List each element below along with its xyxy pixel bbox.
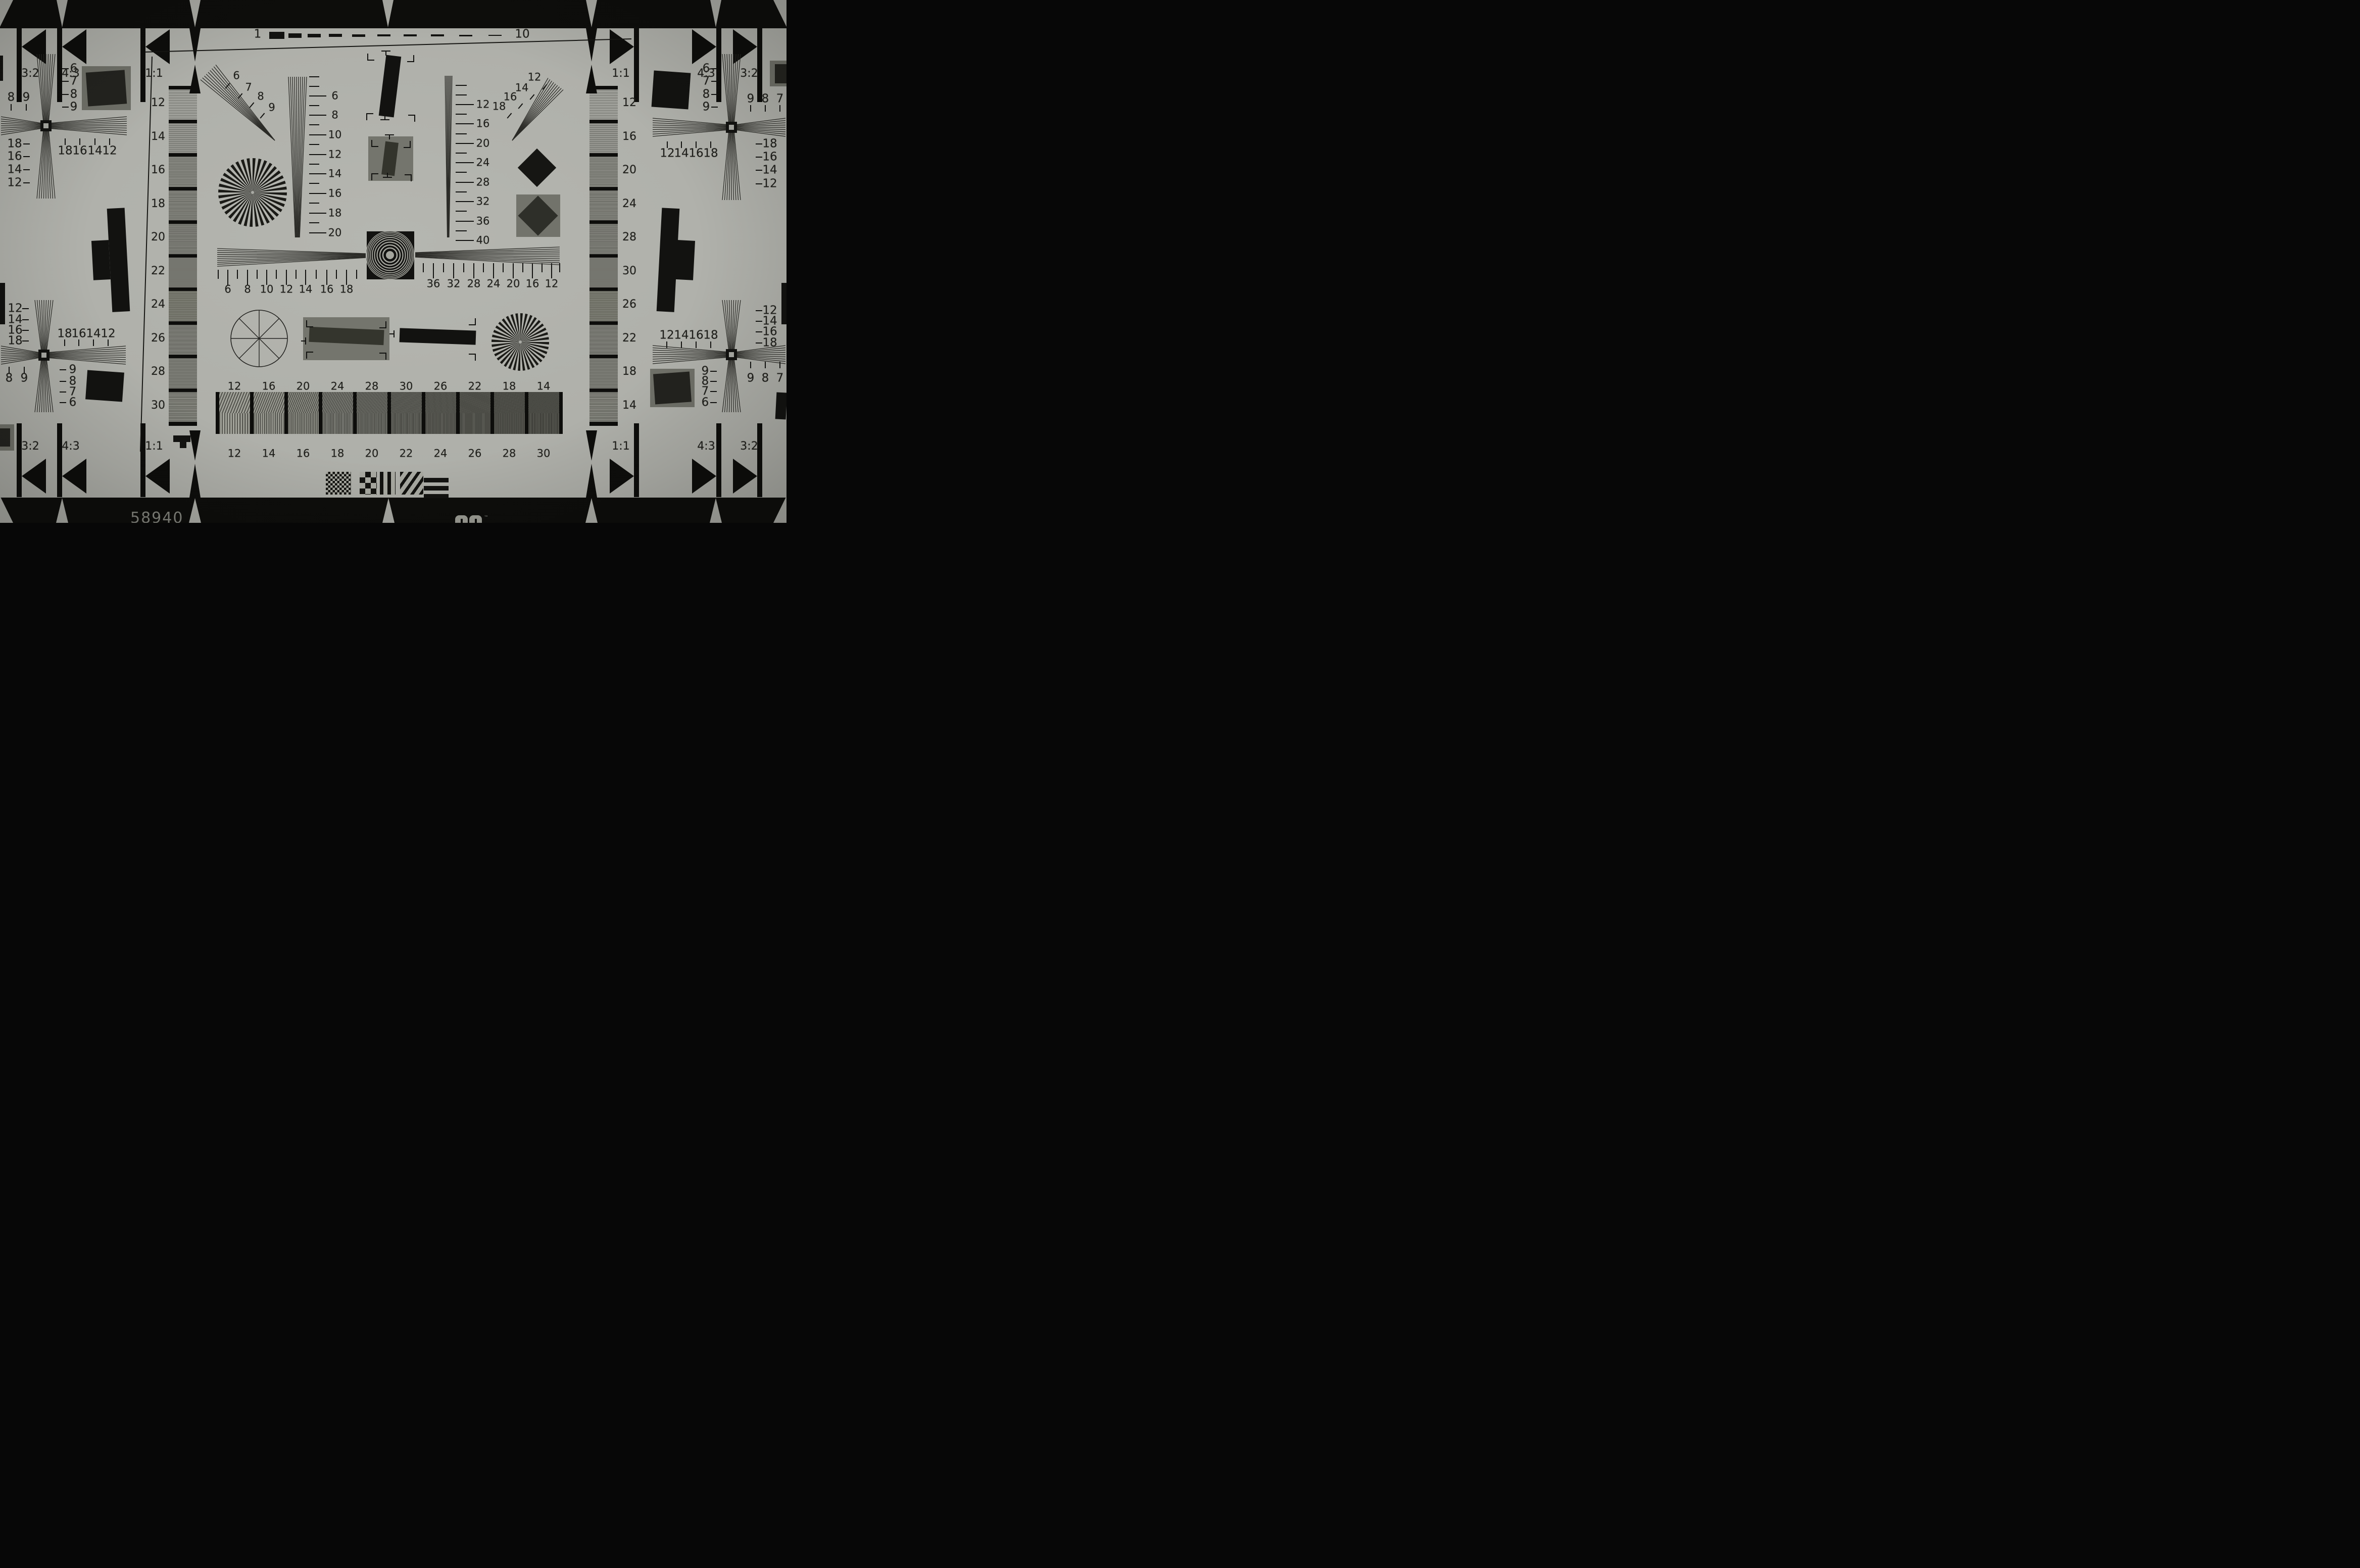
aspect-ratio-label: 3:2 <box>21 441 39 452</box>
scale-label: 9 <box>747 373 755 384</box>
scale-label: 7 <box>776 93 784 105</box>
scale-label: 6 <box>70 63 78 75</box>
scale-label: 12 <box>280 284 293 295</box>
resolution-bar-bottom-label: 24 <box>434 449 448 459</box>
scale-label: 8 <box>257 91 264 102</box>
scale-label: 16 <box>762 152 777 163</box>
chart-labels-layer: 3:24:31:11:14:33:23:24:31:11:14:33:21106… <box>0 0 786 523</box>
scale-label: 18 <box>328 208 342 219</box>
scale-label: 18 <box>703 330 718 341</box>
resolution-bar-bottom-label: 20 <box>365 449 379 459</box>
aspect-ratio-label: 4:3 <box>62 441 79 452</box>
aspect-ratio-label: 3:2 <box>740 68 758 79</box>
step-strip-label: 28 <box>622 232 636 243</box>
scale-label: 9 <box>268 103 275 113</box>
resolution-bar-bottom-label: 30 <box>537 449 551 459</box>
step-strip-label: 20 <box>151 232 165 243</box>
aspect-ratio-label: 1:1 <box>612 441 629 452</box>
resolution-bar-top-label: 16 <box>262 381 276 392</box>
scale-label: 18 <box>57 328 72 340</box>
scale-label: 14 <box>299 284 313 295</box>
scale-label: 9 <box>69 364 77 376</box>
step-strip-label: 16 <box>622 131 636 142</box>
aspect-ratio-label: 3:2 <box>740 441 758 452</box>
scale-label: 40 <box>476 235 490 246</box>
scale-label: 18 <box>703 148 718 160</box>
scale-label: 20 <box>328 228 342 238</box>
scale-label: 18 <box>8 335 22 347</box>
resolution-bar-top-label: 18 <box>503 381 516 392</box>
scale-label: 8 <box>70 89 78 101</box>
step-strip-label: 22 <box>151 266 165 277</box>
scale-label: 8 <box>762 373 769 384</box>
scale-label: 18 <box>762 337 777 349</box>
scale-label: 14 <box>87 145 102 157</box>
step-strip-label: 26 <box>622 299 636 310</box>
step-strip-label: 30 <box>151 400 165 411</box>
resolution-bar-top-label: 20 <box>297 381 310 392</box>
scale-label: 9 <box>21 373 28 384</box>
resolution-bar-top-label: 26 <box>434 381 448 392</box>
scale-label: 14 <box>674 148 689 160</box>
resolution-bar-top-label: 24 <box>331 381 345 392</box>
scale-label: 16 <box>328 188 342 199</box>
aspect-ratio-label: 3:2 <box>21 68 39 79</box>
aspect-ratio-label: 4:3 <box>697 441 715 452</box>
scale-label: 14 <box>7 164 22 176</box>
scale-label: 18 <box>58 145 72 157</box>
scale-label: 12 <box>762 178 777 190</box>
scale-label: 12 <box>328 150 342 160</box>
scale-label: 12 <box>545 279 559 289</box>
scale-label: 8 <box>8 92 15 104</box>
ruler-start-label: 1 <box>254 29 262 40</box>
step-strip-label: 24 <box>151 299 165 310</box>
scale-label: 12 <box>102 145 117 157</box>
scale-label: 14 <box>515 83 529 93</box>
scale-label: 8 <box>244 284 251 295</box>
step-strip-label: 14 <box>151 131 165 142</box>
resolution-bar-top-label: 22 <box>468 381 482 392</box>
scale-label: 9 <box>703 102 710 113</box>
step-strip-label: 24 <box>622 199 636 210</box>
step-strip-label: 16 <box>151 165 165 176</box>
scale-label: 14 <box>674 330 689 341</box>
aspect-ratio-label: 1:1 <box>145 68 163 79</box>
scale-label: 32 <box>447 279 461 289</box>
scale-label: 36 <box>427 279 440 289</box>
scale-label: 20 <box>476 138 490 149</box>
scale-label: 14 <box>328 169 342 179</box>
scale-label: 16 <box>526 279 539 289</box>
scale-label: 8 <box>6 373 13 384</box>
resolution-bar-top-label: 28 <box>365 381 379 392</box>
scale-label: 18 <box>340 284 354 295</box>
scale-label: 12 <box>660 148 674 160</box>
scale-label: 6 <box>233 71 239 81</box>
scale-label: 16 <box>476 119 490 129</box>
scale-label: 7 <box>776 373 784 384</box>
scale-label: 12 <box>101 328 115 340</box>
scale-label: 6 <box>703 63 710 75</box>
resolution-bar-bottom-label: 14 <box>262 449 276 459</box>
resolution-bar-bottom-label: 16 <box>297 449 310 459</box>
logo-glyph-icon <box>455 515 468 523</box>
scale-label: 16 <box>71 328 86 340</box>
resolution-bar-bottom-label: 26 <box>468 449 482 459</box>
scale-label: 24 <box>476 158 490 168</box>
scale-label: 18 <box>7 138 22 150</box>
scale-label: 12 <box>659 330 674 341</box>
trademark-symbol: ™ <box>484 515 488 520</box>
resolution-bar-top-label: 30 <box>400 381 413 392</box>
scale-label: 12 <box>7 177 22 189</box>
resolution-bar-bottom-label: 12 <box>228 449 241 459</box>
resolution-chart-photo: 3:24:31:11:14:33:23:24:31:11:14:33:21106… <box>0 0 786 523</box>
scale-label: 8 <box>762 93 769 105</box>
step-strip-label: 12 <box>151 97 165 109</box>
step-strip-label: 30 <box>622 266 636 277</box>
scale-label: 16 <box>689 330 703 341</box>
scale-label: 8 <box>331 110 338 121</box>
step-strip-label: 18 <box>151 199 165 210</box>
step-strip-label: 12 <box>622 97 636 109</box>
scale-label: 20 <box>507 279 520 289</box>
scale-label: 7 <box>703 76 710 87</box>
ruler-end-label: 10 <box>515 29 529 40</box>
scale-label: 28 <box>476 177 490 188</box>
scale-label: 9 <box>747 93 755 105</box>
scale-label: 14 <box>86 328 101 340</box>
resolution-bar-top-label: 14 <box>537 381 551 392</box>
scale-label: 7 <box>245 82 252 93</box>
scale-label: 12 <box>476 100 490 110</box>
step-strip-label: 28 <box>151 366 165 377</box>
scale-label: 36 <box>476 216 490 227</box>
step-strip-label: 14 <box>622 400 636 411</box>
scale-label: 8 <box>703 89 710 101</box>
scale-label: 6 <box>224 284 231 295</box>
scale-label: 9 <box>23 92 30 104</box>
resolution-bar-bottom-label: 28 <box>503 449 516 459</box>
scale-label: 9 <box>70 102 78 113</box>
scale-label: 18 <box>493 102 506 112</box>
scale-label: 12 <box>528 72 542 83</box>
step-strip-label: 20 <box>622 165 636 176</box>
scale-label: 28 <box>467 279 481 289</box>
aspect-ratio-label: 1:1 <box>612 68 629 79</box>
resolution-bar-bottom-label: 22 <box>400 449 413 459</box>
scale-label: 16 <box>320 284 334 295</box>
scale-label: 24 <box>487 279 501 289</box>
scale-label: 16 <box>689 148 703 160</box>
scale-label: 16 <box>7 151 22 163</box>
chart-serial-number: 58940 <box>130 509 183 523</box>
scale-label: 18 <box>762 138 777 150</box>
scale-label: 32 <box>476 197 490 207</box>
scale-label: 6 <box>69 397 77 409</box>
logo-glyph-icon <box>469 515 482 523</box>
aspect-ratio-label: 1:1 <box>145 441 163 452</box>
step-strip-label: 26 <box>151 333 165 344</box>
step-strip-label: 18 <box>622 366 636 377</box>
scale-label: 6 <box>331 91 338 102</box>
scale-label: 10 <box>328 130 342 140</box>
scale-label: 14 <box>762 165 777 176</box>
scale-label: 16 <box>72 145 87 157</box>
step-strip-label: 22 <box>622 333 636 344</box>
resolution-bar-bottom-label: 18 <box>331 449 345 459</box>
scale-label: 10 <box>260 284 274 295</box>
scale-label: 7 <box>70 76 78 87</box>
resolution-bar-top-label: 12 <box>228 381 241 392</box>
scale-label: 6 <box>702 397 709 409</box>
